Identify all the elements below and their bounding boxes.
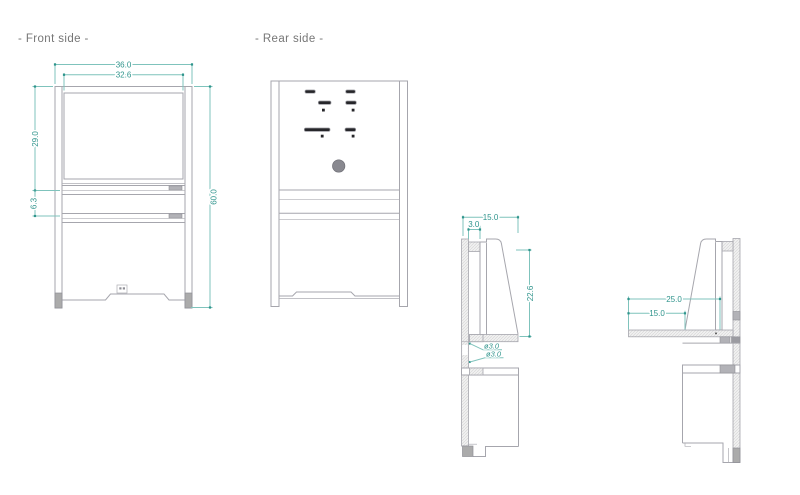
dim-label-sl-3: 3.0 [468,220,480,229]
dim-label-sr-25: 25.0 [666,295,682,304]
sr-slanted-bracket [685,239,716,330]
rear-rails [279,190,400,219]
dim-sl-bracket-height: 22.6 [516,249,535,338]
sl-rear-foot [463,446,474,457]
dim-sr-desk-front-depth: 15.0 [627,309,686,329]
sl-bottom-step [473,447,519,457]
technical-drawing-page: - Front side - - Rear side - [0,0,800,495]
dim-label-sl-15: 15.0 [483,213,499,222]
dim-label-hole-lower: ø3.0 [486,350,502,359]
dim-label-36: 36.0 [116,60,132,69]
callout-hole-lower: ø3.0 [469,350,504,364]
dim-sl-rear-thickness: 3.0 [467,220,481,239]
front-bottom-arch [62,294,185,300]
drawing-canvas: 36.0 32.6 29.0 [0,0,800,495]
sl-slanted-bracket [487,239,519,334]
dim-label-sl-22-6: 22.6 [526,285,535,301]
dim-sr-desk-total-depth: 25.0 [627,295,721,330]
power-outlet-icon [117,285,127,293]
dim-front-inner-width: 32.6 [63,71,184,91]
dim-label-29: 29.0 [31,131,40,147]
rear-bottom-arch [279,292,400,296]
front-right-foot [185,293,192,308]
rear-left-side-panel [271,81,279,307]
sr-bottom-step [683,443,741,463]
sl-inner-strut [480,242,487,337]
dim-label-sr-15: 15.0 [649,309,665,318]
sr-desk-surface [629,330,734,337]
sl-top-spacer [469,242,481,252]
sr-rear-foot [733,448,740,463]
mounting-slots-icon [304,90,356,138]
front-left-foot [55,293,62,308]
screw-dot-icon [715,332,717,334]
front-rail-lower [62,214,185,223]
rear-right-side-panel [400,81,408,307]
sr-inner-strut [716,242,723,331]
rear-view [271,81,408,307]
side-view-left: 15.0 3.0 22.6 [462,213,535,456]
dim-label-6-3: 6.3 [30,197,39,209]
front-rail-upper [62,186,185,195]
side-view-right: 25.0 15.0 [627,239,740,463]
dim-label-32-6: 32.6 [116,71,132,80]
dim-front-total-height: 60.0 [191,85,219,308]
cable-hole-icon [333,160,345,172]
front-view: 36.0 32.6 29.0 [30,60,219,308]
front-right-side-panel [185,87,192,309]
front-left-side-panel [55,87,62,309]
sr-top-spacer [722,242,733,252]
front-screen-opening [64,93,183,179]
sr-rear-panel [733,239,740,463]
sl-rear-panel [462,239,469,446]
dim-label-60: 60.0 [210,189,219,205]
